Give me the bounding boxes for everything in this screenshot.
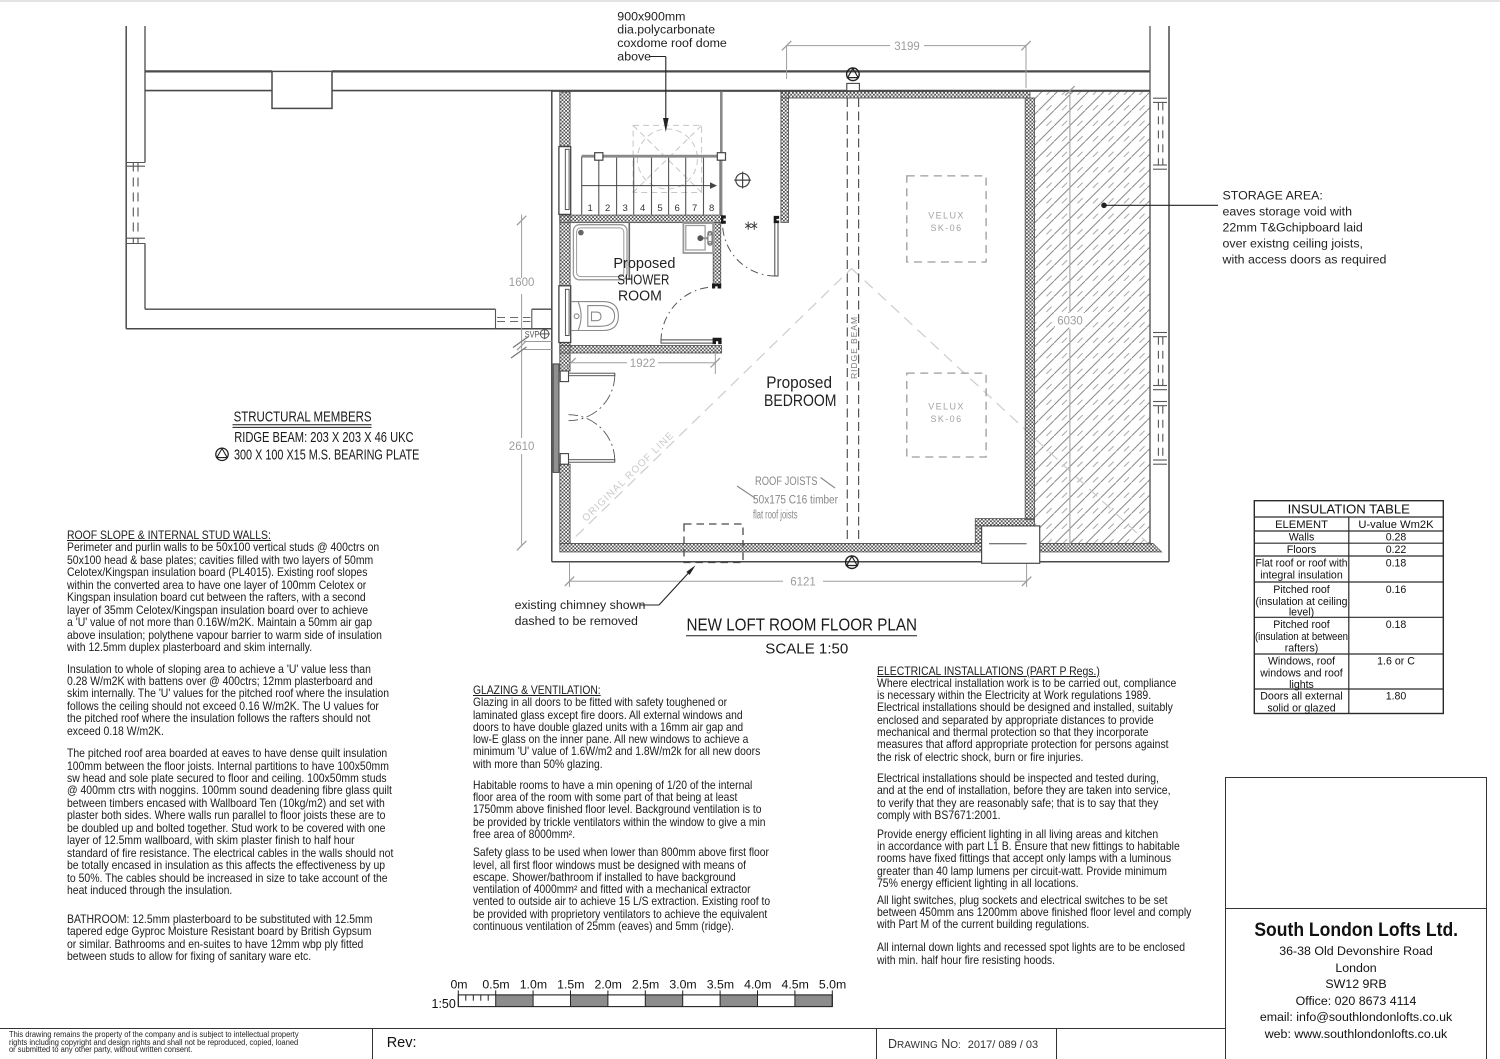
svg-text:with access doors as required: with access doors as required [1222,253,1387,267]
svg-text:1600: 1600 [509,277,535,289]
svg-text:0.18: 0.18 [1386,557,1407,569]
svg-text:ROOF JOISTS: ROOF JOISTS [755,476,818,488]
svg-text:above: above [617,50,651,64]
svg-text:3199: 3199 [894,41,920,53]
svg-text:solid or glazed: solid or glazed [1267,703,1335,715]
svg-text:Doors all external: Doors all external [1260,691,1342,703]
svg-text:over existng ceiling joists,: over existng ceiling joists, [1223,237,1364,251]
svg-text:SK-06: SK-06 [930,223,962,233]
svg-text:2.5m: 2.5m [632,978,659,992]
svg-text:BEDROOM: BEDROOM [764,392,837,410]
svg-text:rafters): rafters) [1285,643,1319,655]
svg-text:5.0m: 5.0m [819,978,846,992]
svg-text:Pitched roof: Pitched roof [1273,619,1330,631]
svg-text:level): level) [1289,607,1314,619]
svg-text:lights: lights [1289,679,1314,691]
svg-text:3.0m: 3.0m [669,978,696,992]
svg-text:4.0m: 4.0m [744,978,771,992]
svg-text:SCALE 1:50: SCALE 1:50 [765,642,848,658]
svg-text:dashed to be removed: dashed to be removed [515,614,638,628]
svg-text:windows and roof: windows and roof [1259,667,1342,679]
svg-text:1: 1 [588,203,593,214]
svg-text:ELEMENT: ELEMENT [1275,519,1328,531]
svg-text:1922: 1922 [630,358,656,370]
svg-text:1.6 or C: 1.6 or C [1377,655,1415,667]
svg-text:0.18: 0.18 [1386,619,1407,631]
svg-text:2: 2 [605,203,610,214]
svg-text:RIDGE BEAM: RIDGE BEAM [849,316,859,379]
svg-text:coxdome roof dome: coxdome roof dome [617,36,727,50]
svg-text:STORAGE AREA:: STORAGE AREA: [1223,189,1323,203]
svg-text:Walls: Walls [1289,532,1315,544]
svg-text:dia.polycarbonate: dia.polycarbonate [617,23,715,37]
svg-text:0.5m: 0.5m [482,978,509,992]
svg-text:4: 4 [640,203,645,214]
svg-text:7: 7 [692,203,697,214]
svg-text:4.5m: 4.5m [782,978,809,992]
svg-text:5: 5 [657,203,662,214]
svg-text:1.5m: 1.5m [557,978,584,992]
svg-text:Floors: Floors [1287,544,1316,556]
svg-text:ORIGINAL ROOF LINE: ORIGINAL ROOF LINE [580,430,676,524]
svg-text:22mm T&Gchipboard laid: 22mm T&Gchipboard laid [1223,221,1363,235]
svg-text:ROOM: ROOM [618,288,662,305]
svg-text:8: 8 [709,203,714,214]
svg-text:Proposed: Proposed [613,255,675,272]
svg-text:6030: 6030 [1057,315,1083,327]
svg-text:SVP: SVP [525,330,540,340]
svg-text:0m: 0m [450,978,467,992]
svg-text:300 X 100 X15 M.S. BEARING PLA: 300 X 100 X15 M.S. BEARING PLATE [234,448,420,464]
svg-text:0.16: 0.16 [1386,584,1407,596]
svg-text:Proposed: Proposed [766,374,832,392]
svg-text:integral insulation: integral insulation [1260,569,1343,581]
svg-text:INSULATION TABLE: INSULATION TABLE [1288,502,1411,517]
svg-text:0.28: 0.28 [1386,532,1407,544]
svg-text:STRUCTURAL MEMBERS: STRUCTURAL MEMBERS [234,409,372,426]
svg-text:6121: 6121 [790,576,816,588]
svg-text:6: 6 [674,203,679,214]
svg-text:0.22: 0.22 [1386,544,1407,556]
svg-text:2610: 2610 [509,441,535,453]
svg-text:1.0m: 1.0m [520,978,547,992]
svg-text:NEW LOFT ROOM FLOOR PLAN: NEW LOFT ROOM FLOOR PLAN [687,615,918,635]
svg-text:1:50: 1:50 [432,997,456,1011]
svg-text:VELUX: VELUX [928,402,965,412]
svg-text:SHOWER: SHOWER [617,271,669,288]
svg-text:Flat roof or roof with: Flat roof or roof with [1256,557,1348,569]
svg-text:existing chimney shown: existing chimney shown [515,598,646,612]
svg-text:3.5m: 3.5m [707,978,734,992]
svg-text:VELUX: VELUX [928,211,965,221]
svg-text:2.0m: 2.0m [595,978,622,992]
svg-text:U-value Wm2K: U-value Wm2K [1358,519,1434,531]
svg-text:(insulation at between: (insulation at between [1255,631,1348,643]
svg-text:SK-06: SK-06 [930,414,962,424]
svg-text:eaves storage void with: eaves storage void with [1223,205,1353,219]
svg-text:flat roof joists: flat roof joists [753,510,798,522]
svg-text:50x175 C16 timber: 50x175 C16 timber [753,495,838,507]
svg-text:Pitched roof: Pitched roof [1273,584,1330,596]
svg-text:RIDGE BEAM: 203 X 203 X 46 UK: RIDGE BEAM: 203 X 203 X 46 UKC [234,430,413,446]
svg-text:900x900mm: 900x900mm [617,9,685,23]
svg-text:1.80: 1.80 [1386,691,1407,703]
svg-text:3: 3 [622,203,627,214]
svg-text:Windows, roof: Windows, roof [1268,655,1335,667]
